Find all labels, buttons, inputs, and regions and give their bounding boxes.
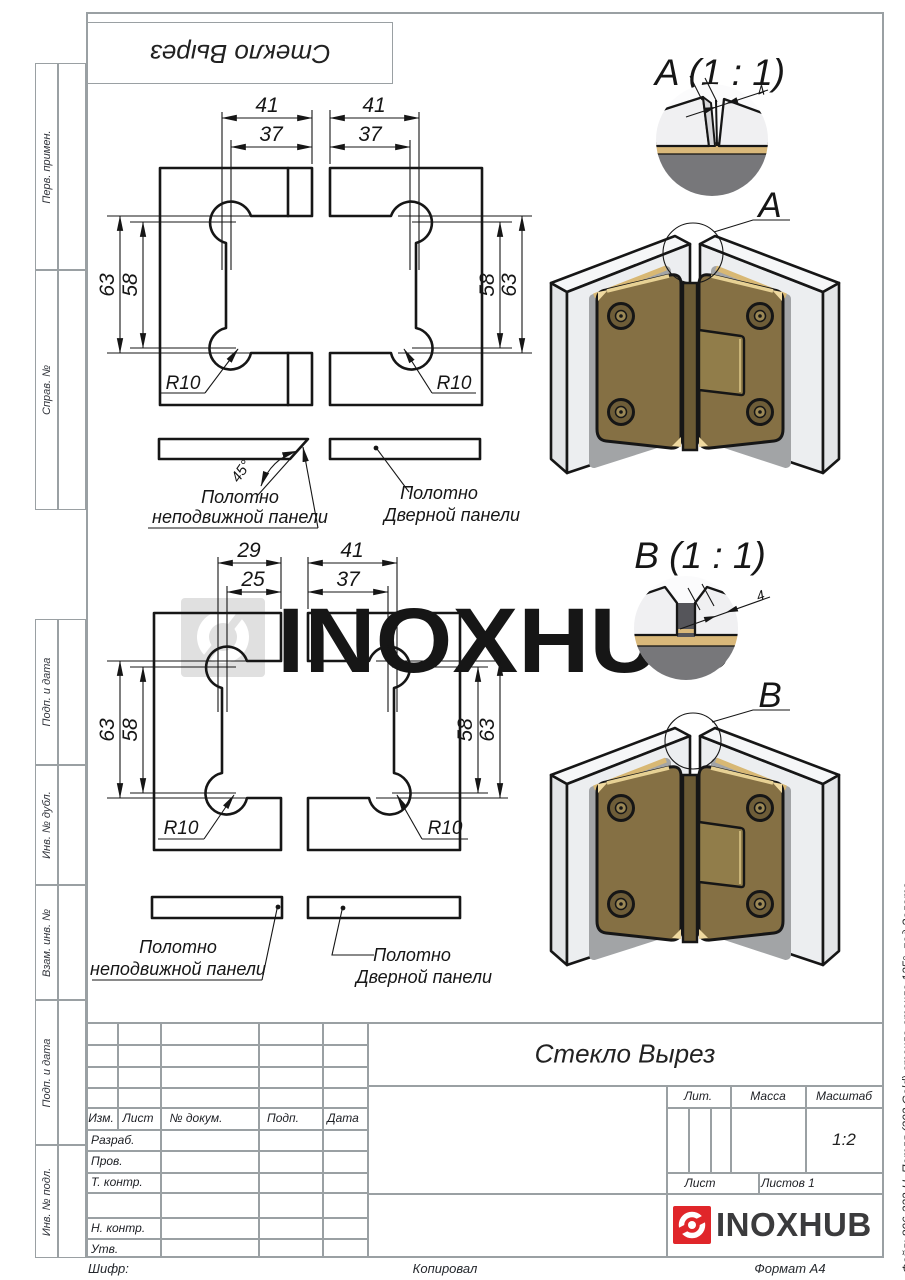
tb-row-n-kontr: Н. контр. bbox=[91, 1221, 145, 1235]
tb-line bbox=[160, 1022, 162, 1258]
tb-line bbox=[86, 1217, 367, 1219]
tb-line bbox=[730, 1085, 732, 1172]
tb-line bbox=[86, 1022, 884, 1024]
scale-value: 1:2 bbox=[832, 1130, 856, 1150]
tb-line bbox=[758, 1172, 760, 1193]
margin-box-vzam-inv: Взам. инв. № bbox=[35, 885, 86, 1000]
tb-line bbox=[86, 1129, 367, 1131]
tb-line bbox=[86, 1066, 367, 1068]
tb-line bbox=[86, 1044, 367, 1046]
tb-line bbox=[710, 1107, 712, 1172]
tb-massa: Масса bbox=[750, 1089, 785, 1103]
margin-label: Справ. № bbox=[41, 365, 53, 415]
tb-row-t-kontr: Т. контр. bbox=[91, 1175, 143, 1189]
tb-masshtab: Масштаб bbox=[816, 1089, 872, 1103]
margin-divider bbox=[57, 1146, 59, 1257]
margin-box-inv-dubl: Инв. № дубл. bbox=[35, 765, 86, 885]
margin-label: Перв. примен. bbox=[41, 130, 53, 203]
tb-line bbox=[688, 1107, 690, 1172]
tb-col-date: Дата bbox=[327, 1111, 359, 1125]
margin-divider bbox=[57, 271, 59, 509]
margin-box-inv-podl: Инв. № подл. bbox=[35, 1145, 86, 1258]
top-stamp-box: Стекло Вырез bbox=[87, 22, 393, 84]
margin-divider bbox=[57, 620, 59, 764]
tb-line bbox=[86, 1238, 367, 1240]
tb-line bbox=[322, 1022, 324, 1258]
tb-line bbox=[367, 1022, 369, 1258]
tb-line bbox=[666, 1172, 884, 1174]
margin-divider bbox=[57, 886, 59, 999]
document-title: Стекло Вырез bbox=[535, 1039, 716, 1070]
tb-line bbox=[258, 1022, 260, 1258]
margin-box-sprav: Справ. № bbox=[35, 270, 86, 510]
footer-kopiroval: Копировал bbox=[390, 1261, 500, 1276]
tb-line bbox=[86, 1087, 367, 1089]
top-stamp-text: Стекло Вырез bbox=[150, 38, 331, 69]
tb-col-podp: Подп. bbox=[267, 1111, 299, 1125]
tb-row-utv: Утв. bbox=[91, 1242, 118, 1256]
tb-line bbox=[117, 1022, 119, 1129]
margin-divider bbox=[57, 64, 59, 269]
tb-line bbox=[805, 1085, 807, 1172]
tb-col-list: Лист bbox=[123, 1111, 154, 1125]
tb-line bbox=[86, 1150, 367, 1152]
inoxhub-logo-text: INOXHUB bbox=[716, 1206, 872, 1244]
tb-list: Лист bbox=[685, 1176, 716, 1190]
sheet-frame bbox=[86, 12, 884, 1258]
tb-line bbox=[86, 1107, 367, 1109]
margin-label: Подп. и дата bbox=[41, 1038, 53, 1107]
tb-listov: Листов 1 bbox=[761, 1176, 815, 1190]
margin-label: Инв. № подл. bbox=[41, 1167, 53, 1235]
footer-shifr: Шифр: bbox=[88, 1261, 129, 1276]
tb-row-razrab: Разраб. bbox=[91, 1133, 134, 1147]
margin-label: Инв. № дубл. bbox=[41, 791, 53, 859]
inoxhub-logo: INOXHUB bbox=[666, 1194, 882, 1256]
file-note: Файл: 806-332-U_Петля (302 Gold) стекло-… bbox=[900, 882, 905, 1273]
margin-box-perv-primen: Перв. примен. bbox=[35, 63, 86, 270]
tb-row-prov: Пров. bbox=[91, 1154, 123, 1168]
tb-line bbox=[86, 1172, 367, 1174]
tb-col-izm: Изм. bbox=[88, 1111, 114, 1125]
margin-box-podp-data-2: Подп. и дата bbox=[35, 1000, 86, 1145]
margin-box-podp-data-1: Подп. и дата bbox=[35, 619, 86, 765]
margin-label: Взам. инв. № bbox=[41, 908, 53, 976]
tb-lit: Лит. bbox=[684, 1089, 712, 1103]
inoxhub-logo-icon bbox=[673, 1206, 711, 1244]
tb-line bbox=[666, 1107, 884, 1109]
margin-divider bbox=[57, 1001, 59, 1144]
margin-label: Подп. и дата bbox=[41, 658, 53, 727]
footer-format: Формат A4 bbox=[730, 1261, 850, 1276]
tb-col-doc: № докум. bbox=[170, 1111, 223, 1125]
tb-line bbox=[86, 1192, 367, 1194]
margin-divider bbox=[57, 766, 59, 884]
